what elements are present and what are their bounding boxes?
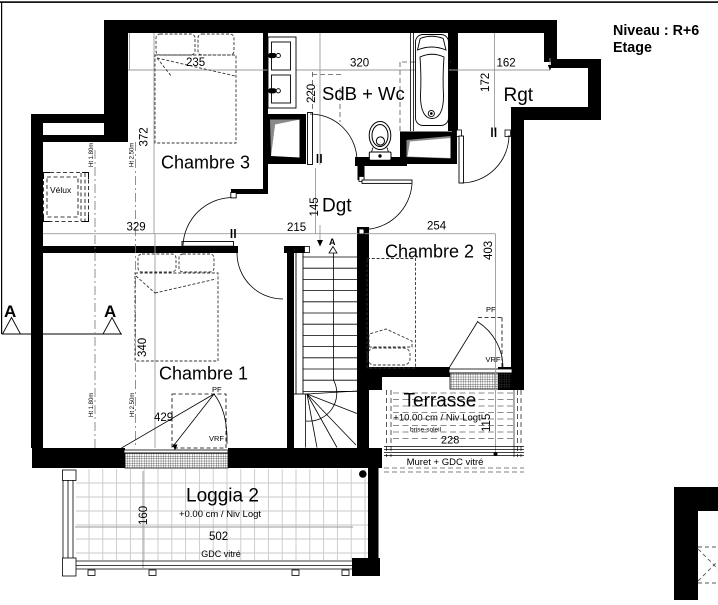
svg-text:215: 215 [287,222,306,234]
svg-text:Muret + GDC vitré: Muret + GDC vitré [407,457,484,468]
svg-text:Chambre 3: Chambre 3 [161,153,250,173]
svg-text:Vélux: Vélux [50,185,72,195]
svg-text:329: 329 [127,222,146,234]
svg-text:VRF: VRF [209,434,224,443]
svg-text:Ht 2.50m: Ht 2.50m [130,393,136,417]
svg-text:Rgt: Rgt [504,85,534,106]
svg-text:340: 340 [137,338,149,357]
svg-text:145: 145 [309,197,321,216]
svg-text:A: A [329,237,336,247]
svg-text:403: 403 [483,241,495,260]
svg-text:PF: PF [486,305,496,314]
svg-text:235: 235 [186,57,205,69]
svg-text:502: 502 [209,531,228,543]
svg-text:172: 172 [480,73,492,92]
svg-text:Loggia 2: Loggia 2 [186,486,259,507]
svg-text:115: 115 [481,414,493,432]
svg-text:PF: PF [212,385,222,394]
svg-text:Chambre 2: Chambre 2 [385,242,474,262]
svg-text:GDC vitré: GDC vitré [201,549,241,559]
svg-text:+0.00 cm / Niv Logt: +0.00 cm / Niv Logt [179,509,261,520]
svg-text:brise-soleil: brise-soleil [410,427,442,434]
svg-text:A: A [4,302,16,321]
svg-text:320: 320 [350,58,369,70]
svg-text:A: A [104,302,116,321]
svg-text:Dgt: Dgt [322,196,352,217]
svg-text:220: 220 [306,84,318,103]
svg-text:Niveau : R+6: Niveau : R+6 [613,23,699,39]
svg-text:Ht 1.80m: Ht 1.80m [89,143,95,167]
svg-text:Ht 1.80m: Ht 1.80m [89,393,95,417]
svg-text:160: 160 [138,506,150,525]
svg-text:VRF: VRF [486,355,501,364]
svg-text:Ht 2.50m: Ht 2.50m [130,143,136,167]
svg-text:+10.00 cm / Niv Logt: +10.00 cm / Niv Logt [393,413,481,424]
svg-text:Terrasse: Terrasse [404,391,477,412]
svg-text:228: 228 [441,435,459,447]
svg-text:Chambre 1: Chambre 1 [159,364,248,384]
svg-text:Etage: Etage [613,40,652,56]
svg-text:372: 372 [139,127,151,146]
svg-text:254: 254 [427,221,447,233]
svg-text:162: 162 [497,58,516,70]
svg-text:429: 429 [154,412,173,424]
svg-text:SdB + Wc: SdB + Wc [322,83,405,104]
